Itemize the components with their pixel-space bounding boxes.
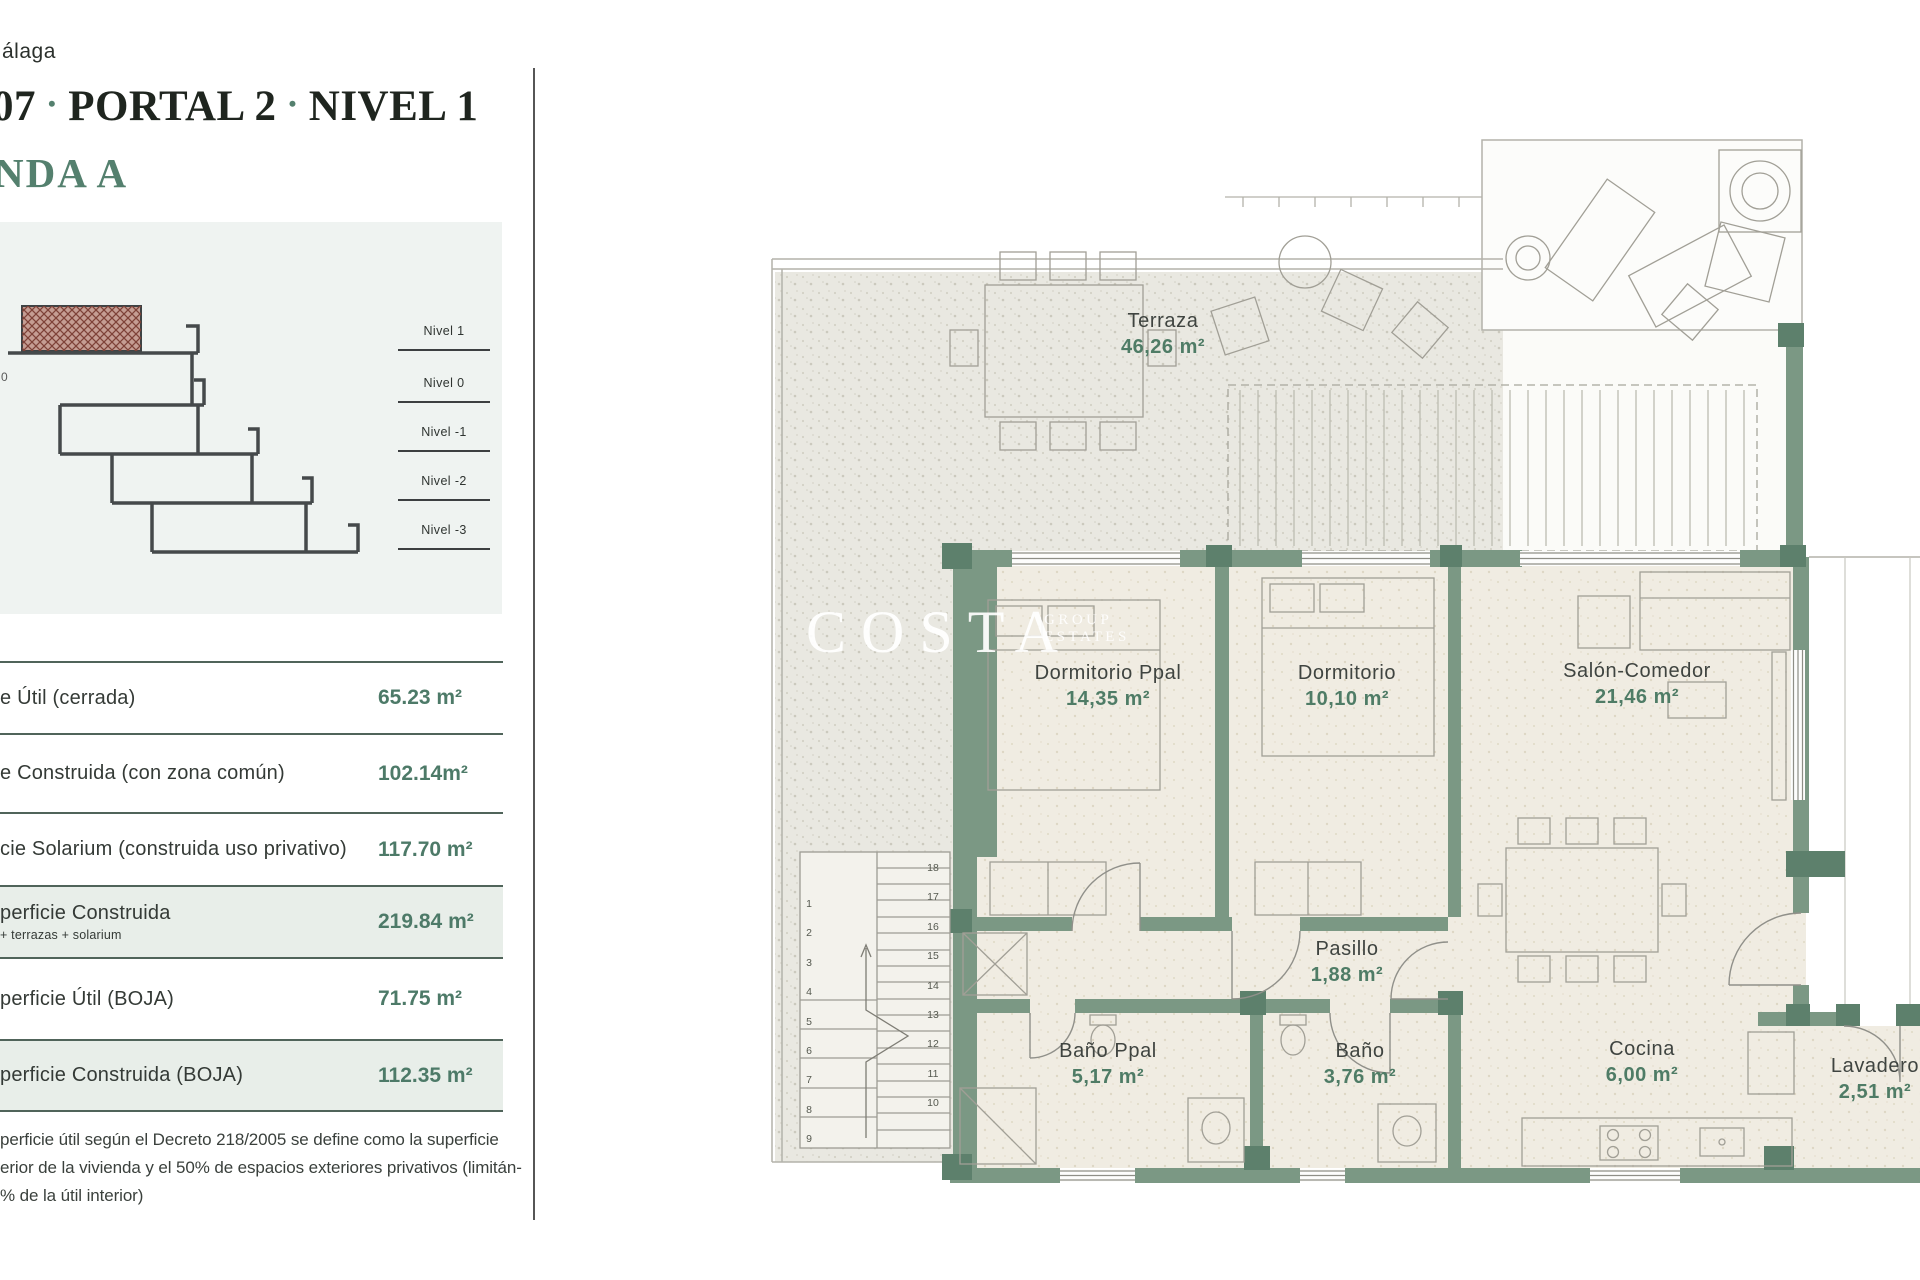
table-row-highlighted: perficie Construida + terrazas + solariu… [0, 885, 503, 957]
room-name: Lavadero [1800, 1055, 1920, 1078]
stair-number: 8 [800, 1096, 818, 1125]
room-label-bano: Baño 3,76 m² [1298, 1040, 1422, 1089]
table-row: cie Solarium (construida uso privativo) … [0, 812, 503, 885]
room-label-dormitorio-ppal: Dormitorio Ppal 14,35 m² [995, 662, 1221, 711]
watermark-subtext: GROUP ESTATES [1044, 612, 1130, 646]
stair-number: 4 [800, 978, 818, 1007]
room-area: 14,35 m² [995, 688, 1221, 711]
room-name: Cocina [1572, 1038, 1712, 1061]
page-title: 07•PORTAL 2•NIVEL 1 [0, 82, 478, 131]
title-level: NIVEL 1 [309, 83, 479, 130]
row-label: e Útil (cerrada) [0, 687, 378, 710]
stair-number: 5 [800, 1008, 818, 1037]
level-label-nivel-0: Nivel 0 [398, 376, 490, 403]
room-name: Baño Ppal [1028, 1040, 1188, 1063]
stair-number: 1 [800, 890, 818, 919]
level-label-nivel-m2: Nivel -2 [398, 474, 490, 501]
room-name: Terraza [1078, 310, 1248, 333]
row-label: cie Solarium (construida uso privativo) [0, 838, 378, 861]
row-value: 102.14m² [378, 762, 503, 786]
plan-sheet-page: álaga 07•PORTAL 2•NIVEL 1 NDA A 0 Nivel … [0, 0, 1920, 1280]
location-text: álaga [2, 40, 56, 64]
footnote-line: erior de la vivienda y el 50% de espacio… [0, 1154, 525, 1182]
room-area: 6,00 m² [1572, 1064, 1712, 1087]
room-label-terraza: Terraza 46,26 m² [1078, 310, 1248, 359]
stair-number: 13 [924, 1001, 942, 1030]
room-area: 46,26 m² [1078, 336, 1248, 359]
row-value: 71.75 m² [378, 987, 503, 1011]
table-row: e Construida (con zona común) 102.14m² [0, 733, 503, 812]
stair-number: 12 [924, 1030, 942, 1059]
section-zero-label: 0 [1, 370, 8, 384]
stair-number: 10 [924, 1089, 942, 1118]
stair-number: 15 [924, 942, 942, 971]
stair-number: 9 [800, 1125, 818, 1154]
room-label-pasillo: Pasillo 1,88 m² [1277, 938, 1417, 987]
row-label: e Construida (con zona común) [0, 762, 378, 785]
title-separator-dot: • [48, 91, 56, 116]
room-label-cocina: Cocina 6,00 m² [1572, 1038, 1712, 1087]
row-value: 112.35 m² [378, 1064, 503, 1088]
title-number: 07 [0, 83, 36, 130]
footnote-line: % de la útil interior) [0, 1182, 525, 1210]
table-row-highlighted: perficie Construida (BOJA) 112.35 m² [0, 1039, 503, 1112]
room-area: 21,46 m² [1525, 686, 1749, 709]
room-area: 2,51 m² [1800, 1081, 1920, 1104]
footnote: perficie útil según el Decreto 218/2005 … [0, 1126, 525, 1210]
level-label-nivel-m1: Nivel -1 [398, 425, 490, 452]
room-area: 3,76 m² [1298, 1066, 1422, 1089]
row-label: perficie Construida (BOJA) [0, 1064, 378, 1087]
room-label-dormitorio: Dormitorio 10,10 m² [1255, 662, 1439, 711]
watermark-sub-top: GROUP [1044, 612, 1130, 629]
room-name: Pasillo [1277, 938, 1417, 961]
vertical-divider [533, 68, 535, 1220]
stair-number: 7 [800, 1066, 818, 1095]
table-row: perficie Útil (BOJA) 71.75 m² [0, 957, 503, 1039]
room-area: 1,88 m² [1277, 964, 1417, 987]
stair-number: 3 [800, 949, 818, 978]
stair-number: 11 [924, 1060, 942, 1089]
row-value: 65.23 m² [378, 686, 503, 710]
table-row: e Útil (cerrada) 65.23 m² [0, 661, 503, 733]
title-separator-dot: • [289, 91, 297, 116]
stair-numbers-left: 1 2 3 4 5 6 7 8 9 [800, 890, 818, 1155]
room-label-salon-comedor: Salón-Comedor 21,46 m² [1525, 660, 1749, 709]
level-label-nivel-m3: Nivel -3 [398, 523, 490, 550]
room-label-bano-ppal: Baño Ppal 5,17 m² [1028, 1040, 1188, 1089]
section-steps-outline [8, 326, 358, 552]
unit-title: NDA A [0, 149, 128, 197]
room-name: Baño [1298, 1040, 1422, 1063]
title-portal: PORTAL 2 [68, 83, 276, 130]
stair-number: 6 [800, 1037, 818, 1066]
stair-number: 2 [800, 919, 818, 948]
row-label-sub: + terrazas + solarium [0, 928, 378, 942]
stair-number: 16 [924, 913, 942, 942]
stair-number: 14 [924, 972, 942, 1001]
stair-number: 17 [924, 883, 942, 912]
row-label-main: perficie Construida [0, 902, 378, 925]
room-name: Dormitorio [1255, 662, 1439, 685]
stair-number: 18 [924, 854, 942, 883]
room-label-lavadero: Lavadero 2,51 m² [1800, 1055, 1920, 1104]
level-label-nivel-1: Nivel 1 [398, 324, 490, 351]
building-section-drawing [0, 222, 502, 614]
row-label: perficie Construida + terrazas + solariu… [0, 902, 378, 942]
room-name: Salón-Comedor [1525, 660, 1749, 683]
row-value: 117.70 m² [378, 838, 503, 862]
room-name: Dormitorio Ppal [995, 662, 1221, 685]
row-value: 219.84 m² [378, 910, 503, 934]
row-label: perficie Útil (BOJA) [0, 988, 378, 1011]
watermark-sub-bottom: ESTATES [1044, 629, 1130, 646]
building-section-panel: 0 Nivel 1 Nivel 0 Nivel -1 Nivel -2 Nive… [0, 222, 502, 614]
room-area: 10,10 m² [1255, 688, 1439, 711]
areas-table: e Útil (cerrada) 65.23 m² e Construida (… [0, 661, 503, 1112]
room-area: 5,17 m² [1028, 1066, 1188, 1089]
highlighted-unit-hatch [22, 306, 141, 351]
watermark-text: COSTA [806, 598, 1073, 667]
stair-numbers-right: 18 17 16 15 14 13 12 11 10 [924, 854, 942, 1119]
footnote-line: perficie útil según el Decreto 218/2005 … [0, 1126, 525, 1154]
